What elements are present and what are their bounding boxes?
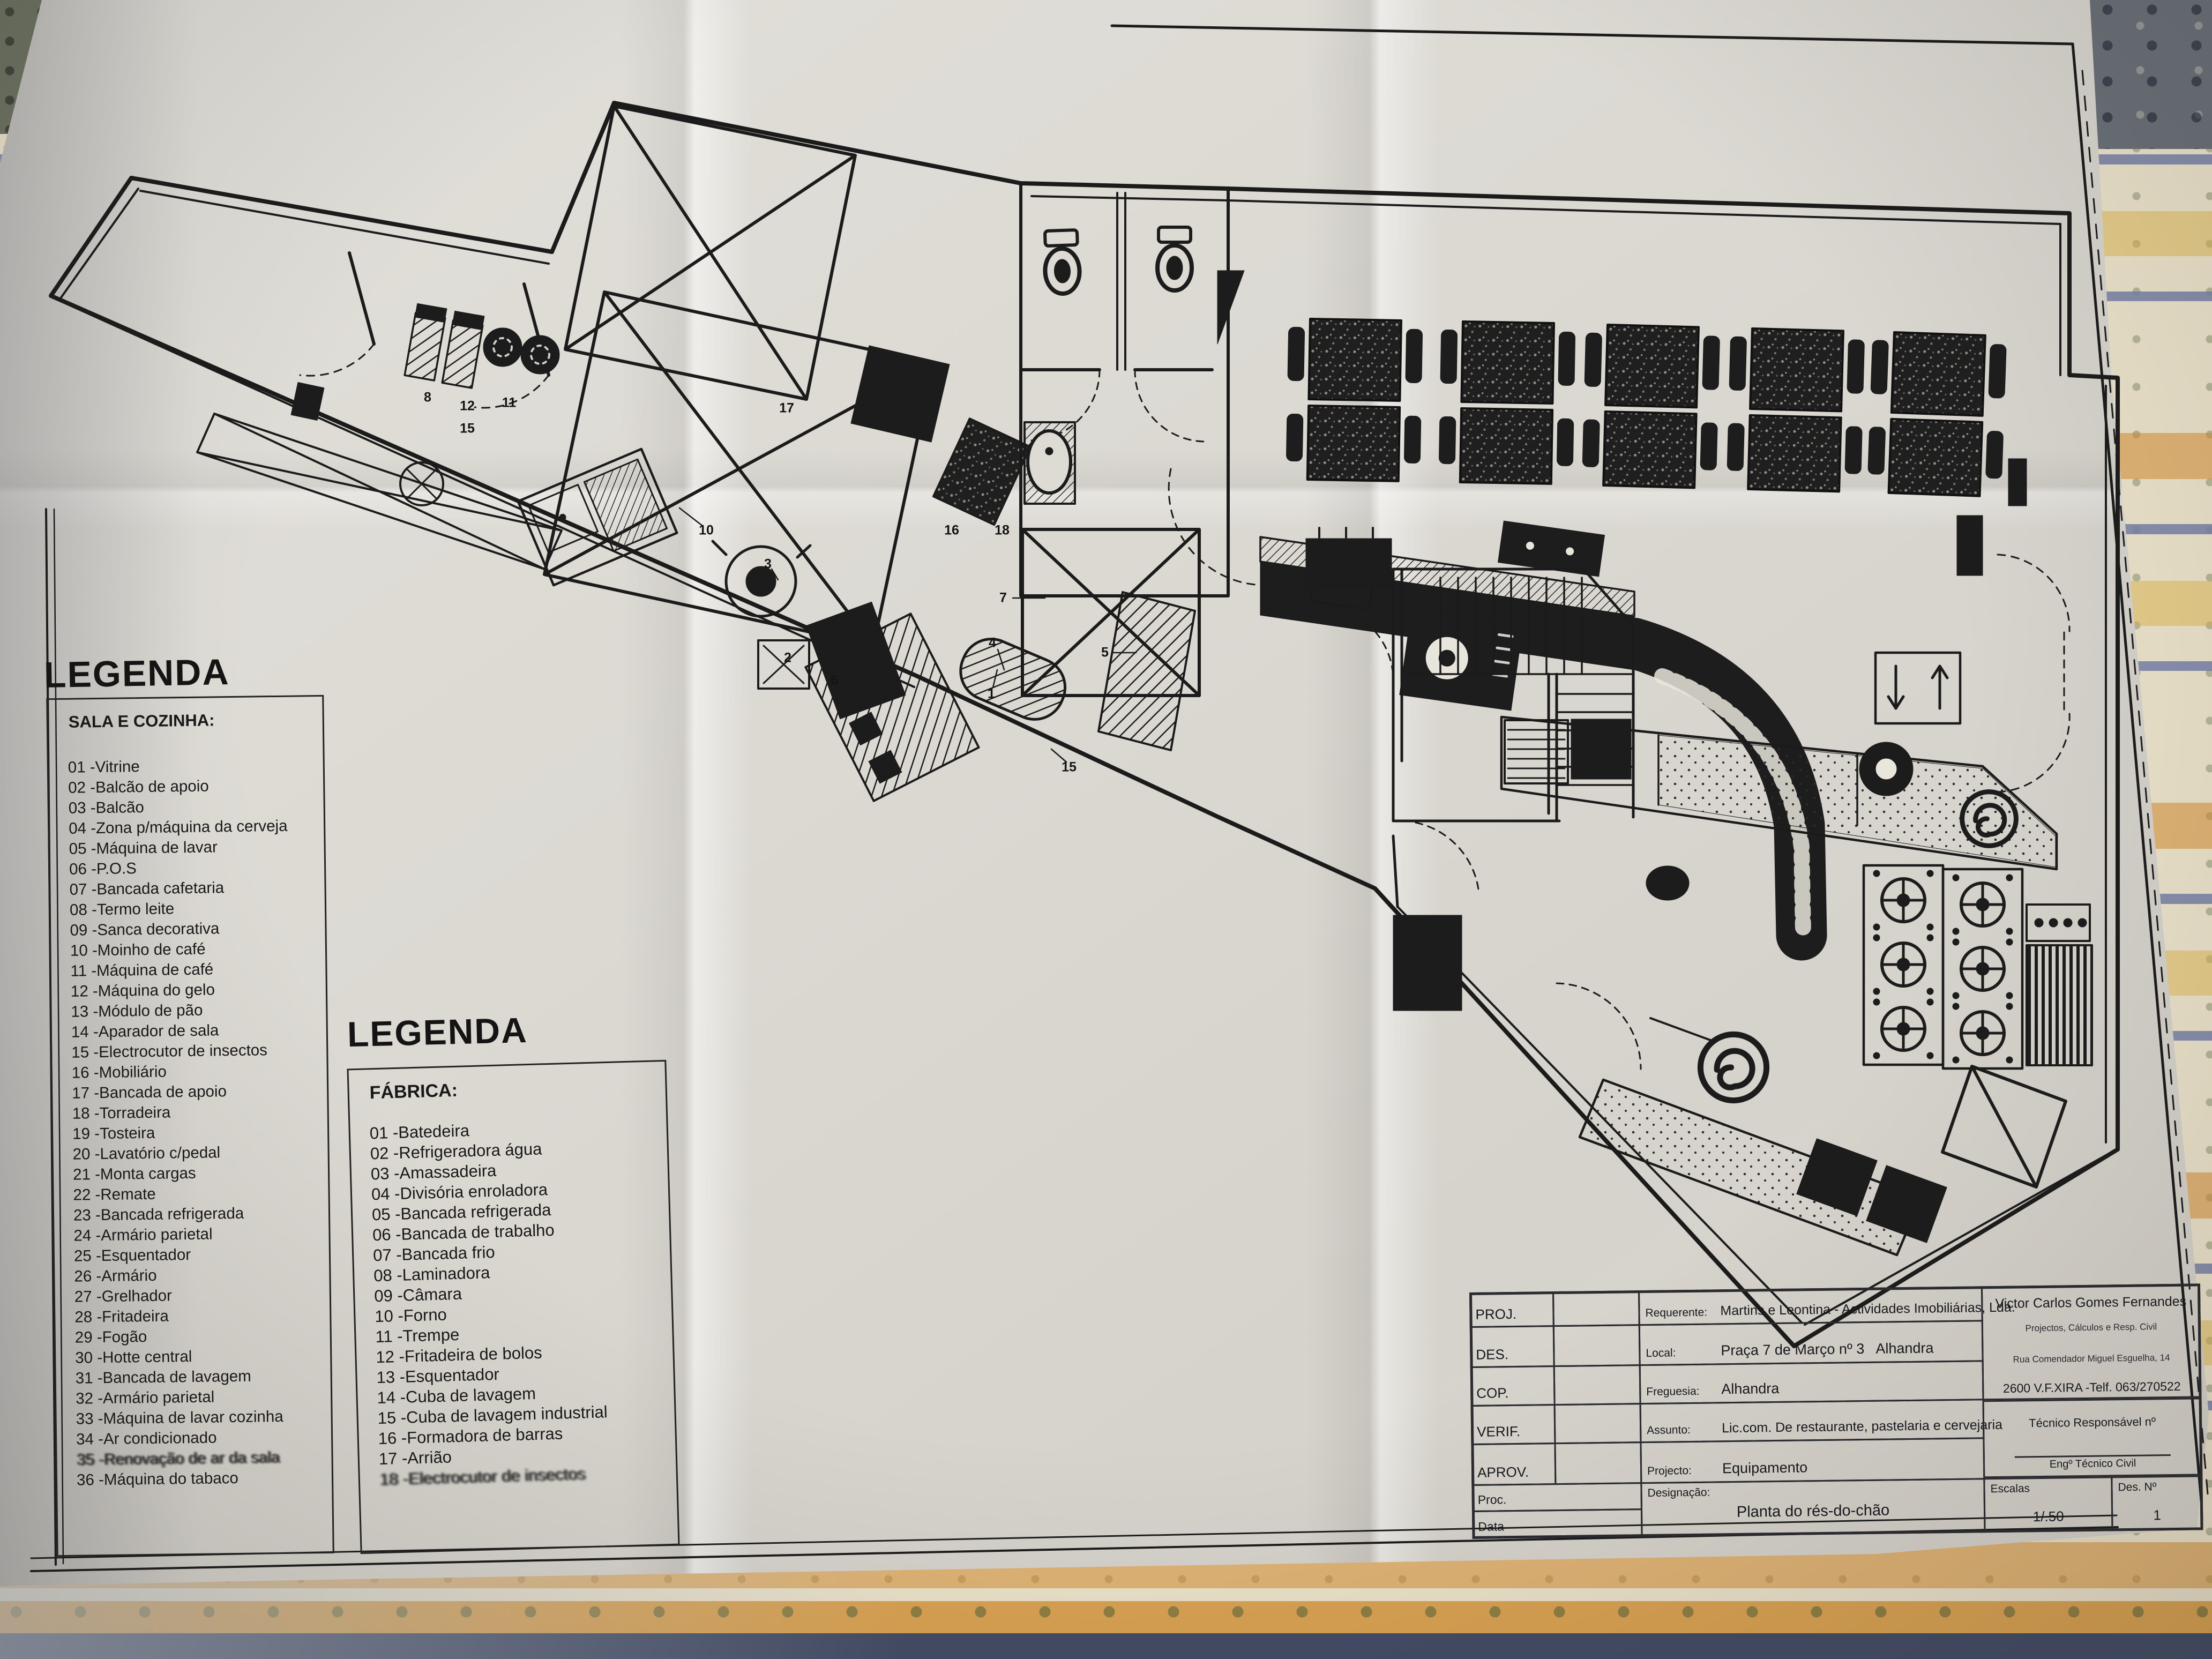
legend-item: 36 -Máquina do tabaco: [77, 1468, 296, 1491]
legend-item: 28 -Fritadeira: [74, 1305, 294, 1328]
field-label: Requerente:: [1645, 1306, 1707, 1320]
row-label: APROV.: [1477, 1464, 1529, 1481]
eng-label: Engº Técnico Civil: [2015, 1454, 2170, 1471]
legend-item: 20 -Lavatório c/pedal: [72, 1142, 292, 1165]
legend-item: 24 -Armário parietal: [73, 1223, 293, 1246]
legend-sala-header: SALA E COZINHA:: [69, 711, 215, 731]
legend-item: 30 -Hotte central: [75, 1346, 294, 1369]
row-label: COP.: [1476, 1385, 1509, 1402]
row-label: DES.: [1476, 1346, 1508, 1363]
row-label: VERIF.: [1477, 1423, 1520, 1440]
legend-item: 34 -Ar condicionado: [76, 1427, 295, 1450]
bathrooms: [1021, 185, 1266, 596]
legend-fabrica-title: LEGENDA: [347, 1010, 528, 1055]
legend-sala-box: SALA E COZINHA: 01 -Vitrine02 -Balcão de…: [46, 695, 334, 1557]
firm-tecnico: Técnico Responsável nº Engº Técnico Civi…: [1983, 1398, 2203, 1478]
row-label: PROJ.: [1475, 1306, 1516, 1323]
escalas-value: 1/.50: [1985, 1507, 2111, 1526]
legend-item: 01 -Vitrine: [68, 755, 287, 778]
legend-item: 08 -Termo leite: [70, 898, 289, 921]
legend-item: 33 -Máquina de lavar cozinha: [76, 1407, 295, 1430]
legend-item: 22 -Remate: [73, 1183, 292, 1206]
fabrica-wing: [197, 253, 1195, 801]
firm-line3: 2600 V.F.XIRA -Telf. 063/270522: [1982, 1379, 2201, 1396]
legend-item: 25 -Esquentador: [74, 1244, 293, 1267]
legend-item: 15 -Electrocutor de insectos: [71, 1040, 290, 1063]
proc-label: Proc.: [1478, 1492, 1507, 1507]
field-value: Lic.com. De restaurante, pastelaria e ce…: [1722, 1417, 2002, 1436]
legend-item: 18 -Torradeira: [72, 1101, 291, 1124]
photo-of-floor-plan: LEGENDA SALA E COZINHA: 01 -Vitrine02 -B…: [0, 0, 2212, 1659]
legend-item: 31 -Bancada de lavagem: [76, 1366, 295, 1389]
designacao-label: Designação:: [1647, 1486, 1710, 1500]
legend-item: 29 -Fogão: [75, 1325, 294, 1348]
legend-item: 19 -Tosteira: [72, 1122, 292, 1145]
field-value: Equipamento: [1722, 1459, 1807, 1477]
field-label: Freguesia:: [1646, 1385, 1700, 1399]
tecnico-label: Técnico Responsável nº: [1984, 1414, 2200, 1431]
legend-item: 03 -Balcão: [69, 796, 288, 819]
legend-item: 13 -Módulo de pão: [71, 999, 290, 1022]
field-value: Praça 7 de Março nº 3 Alhandra: [1721, 1340, 1933, 1359]
field-label: Assunto:: [1647, 1424, 1691, 1437]
legend-item: 14 -Aparador de sala: [71, 1020, 290, 1043]
legend-item: 26 -Armário: [74, 1264, 293, 1287]
legend-item: 12 -Máquina do gelo: [71, 979, 290, 1002]
field-value: Martins e Leontina - Actividades Imobili…: [1720, 1300, 2015, 1319]
legend-item: 10 -Moinho de café: [70, 938, 289, 961]
field-value: Alhandra: [1721, 1380, 1779, 1398]
legend-fabrica-box: FÁBRICA: 01 -Batedeira02 -Refrigeradora …: [347, 1060, 679, 1554]
legend-item: 02 -Balcão de apoio: [68, 775, 287, 798]
legend-item: 21 -Monta cargas: [73, 1162, 292, 1185]
field-label: Projecto:: [1647, 1464, 1692, 1478]
title-block: PROJ. DES. COP. VERIF. APROV. Requerente…: [1469, 1283, 2203, 1539]
legend-item: 07 -Bancada cafetaria: [69, 877, 288, 900]
firm-name: Victor Carlos Gomes Fernandes: [1981, 1283, 2201, 1321]
legend-item: 04 -Zona p/máquina da cerveja: [69, 816, 288, 839]
dining-tables: [1286, 318, 2007, 497]
entrance: [1957, 459, 2069, 792]
legend-sala-title: LEGENDA: [43, 651, 230, 696]
legend-item: 23 -Bancada refrigerada: [73, 1203, 293, 1226]
legend-item: 09 -Sanca decorativa: [70, 918, 289, 941]
legend-fabrica-header: FÁBRICA:: [369, 1080, 458, 1104]
desnum-label: Des. Nº: [2118, 1481, 2156, 1494]
legend-sala-list: 01 -Vitrine02 -Balcão de apoio03 -Balcão…: [68, 755, 296, 1491]
legend-item: 06 -P.O.S: [69, 857, 288, 880]
legend-item: 35 -Renovação de ar da sala: [76, 1447, 295, 1470]
legend-item: 05 -Máquina de lavar: [69, 836, 288, 860]
legend-item: 16 -Mobiliário: [72, 1060, 291, 1083]
legend-item: 11 -Máquina de café: [70, 959, 289, 982]
legend-item: 32 -Armário parietal: [76, 1386, 295, 1409]
desnum-value: 1: [2113, 1506, 2201, 1524]
escalas-label: Escalas: [1990, 1482, 2030, 1496]
legend-fabrica-list: 01 -Batedeira02 -Refrigeradora água03 -A…: [369, 1117, 609, 1490]
field-label: Local:: [1646, 1347, 1676, 1360]
data-label: Data: [1478, 1519, 1504, 1534]
skylight-boxes: [544, 106, 2066, 1187]
legend-item: 17 -Bancada de apoio: [72, 1081, 291, 1104]
legend-item: 27 -Grelhador: [74, 1284, 294, 1307]
